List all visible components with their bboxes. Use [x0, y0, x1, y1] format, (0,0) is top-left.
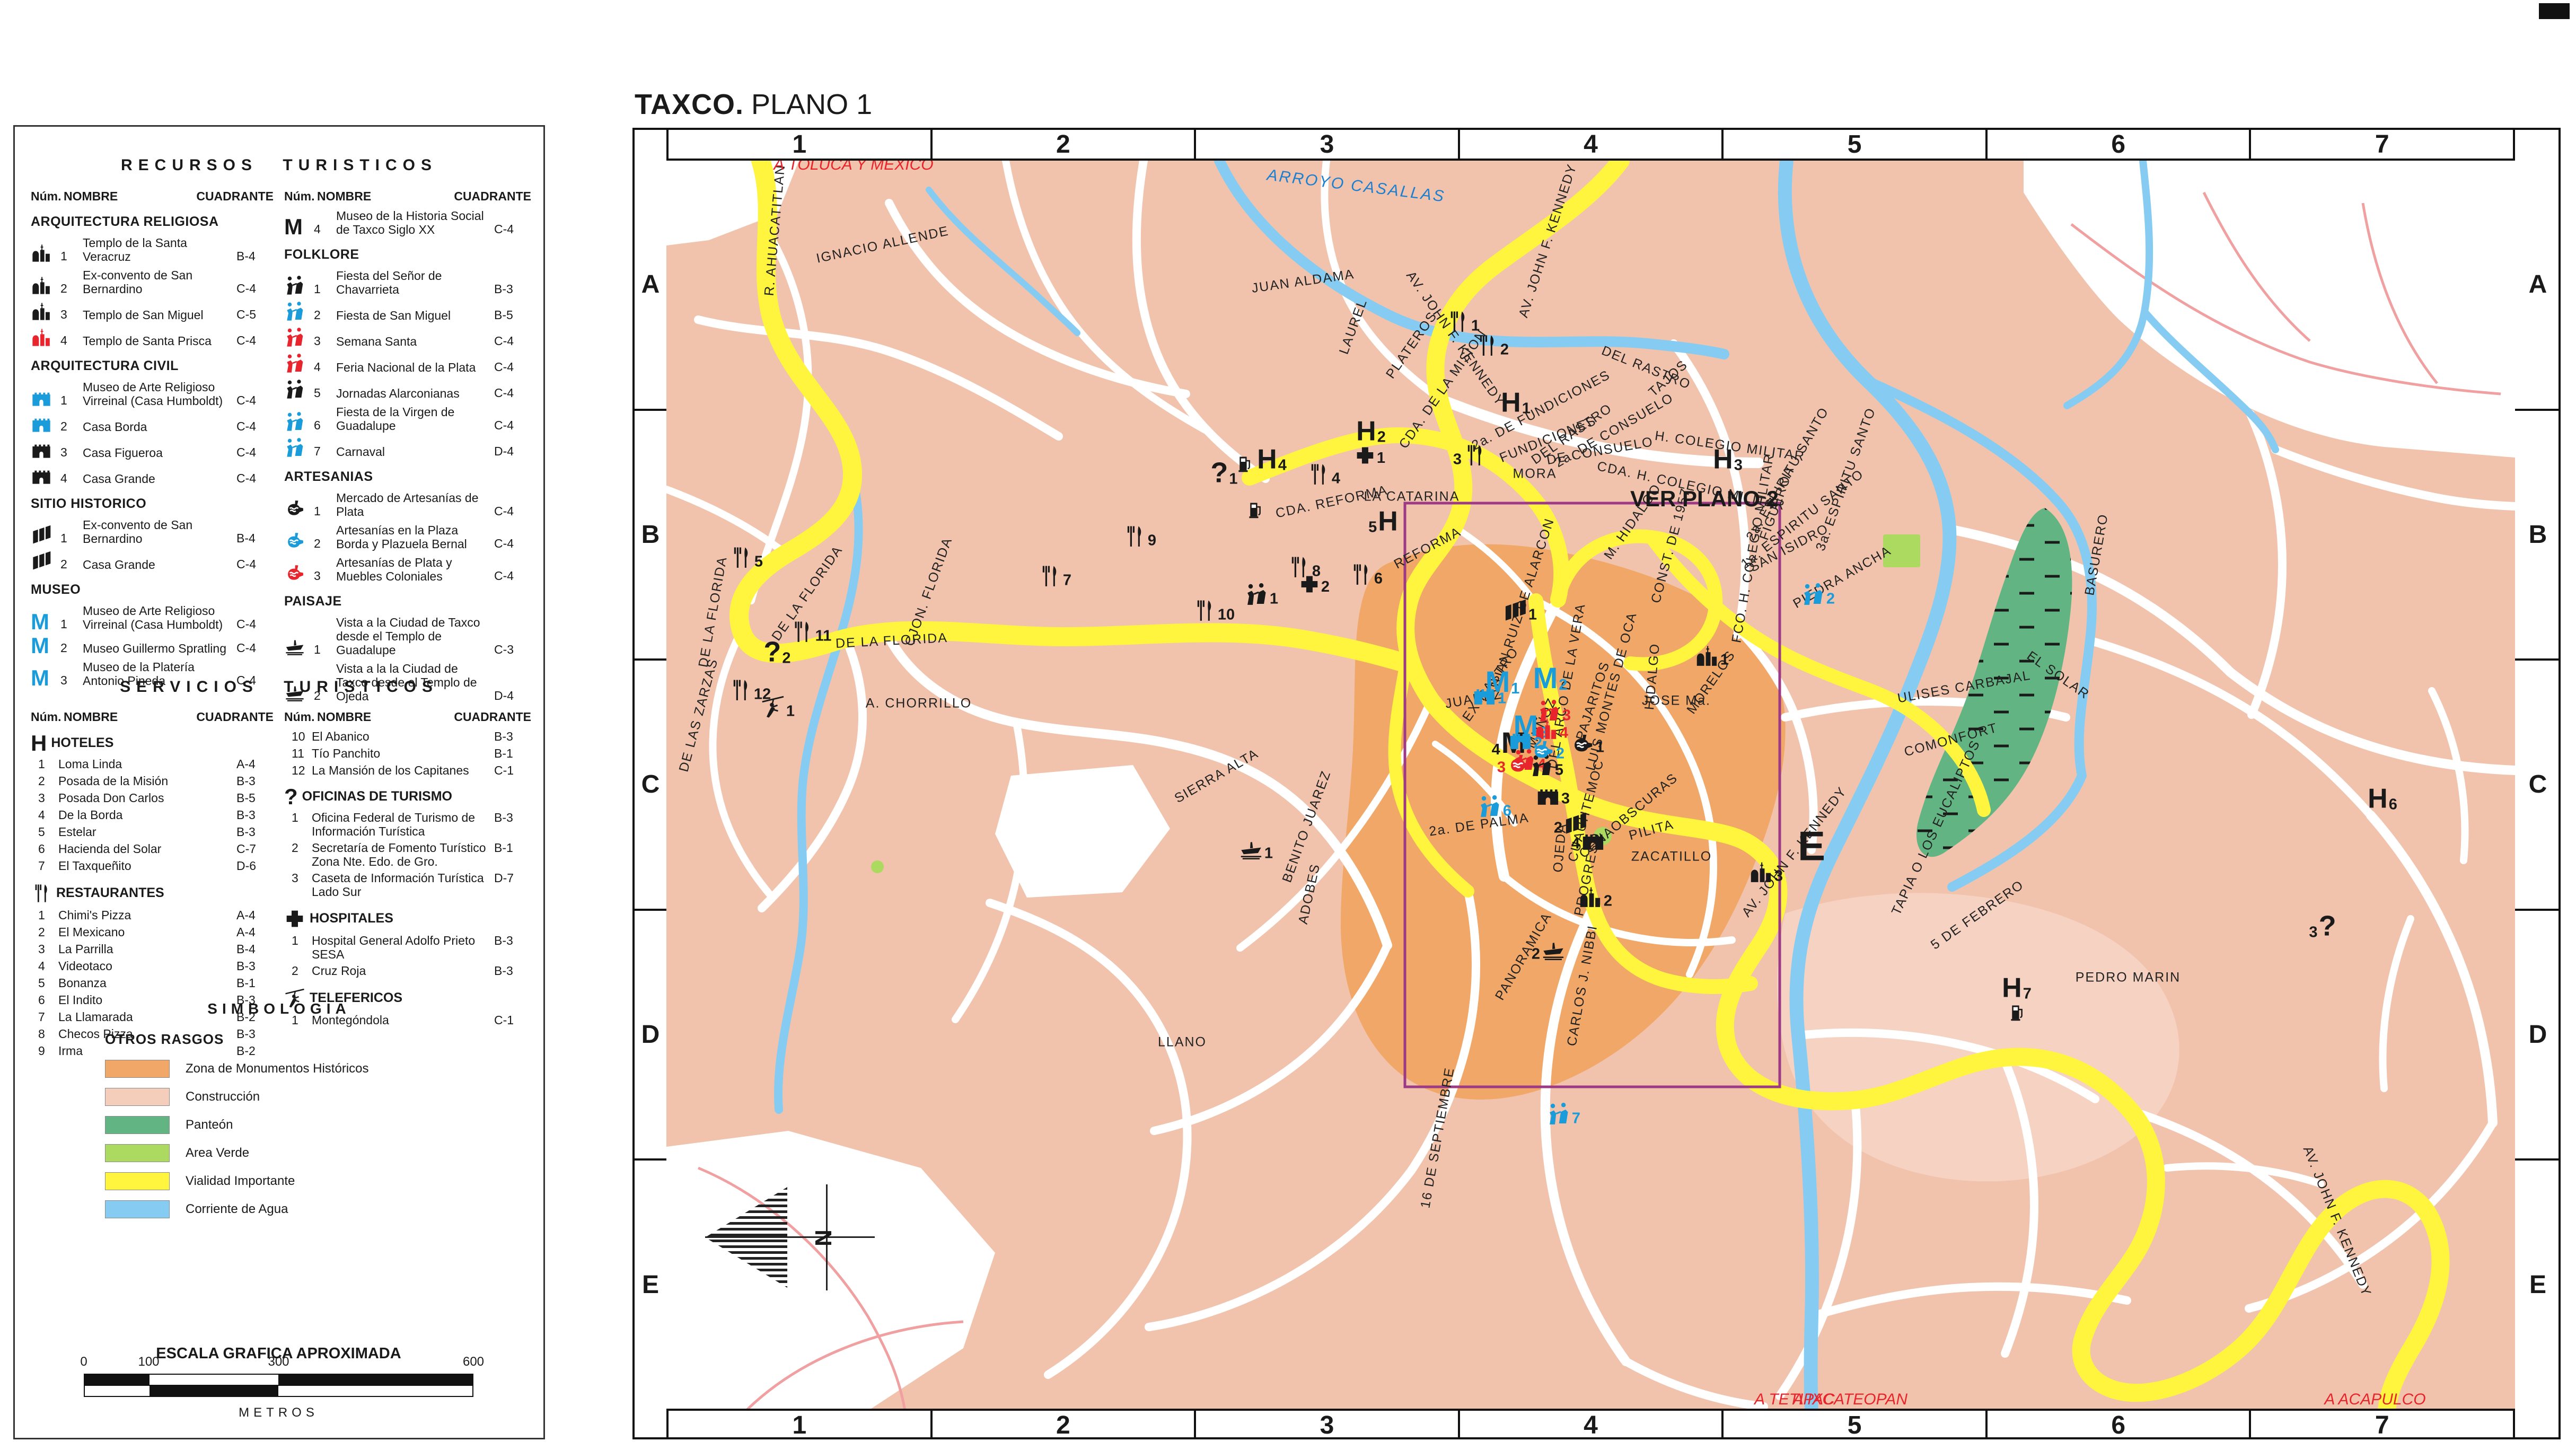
escala-segment: [150, 1375, 279, 1385]
marker-question1: ?1: [1210, 458, 1238, 487]
h-icon: H: [1378, 507, 1398, 535]
legend-item: 3Templo de San MiguelC-5: [31, 301, 274, 322]
legend-item: 7El TaxqueñitoD-6: [31, 859, 274, 873]
marker-fork4: 4: [1306, 462, 1341, 487]
legend-item-name: Templo de San Miguel: [83, 308, 236, 322]
legend-item-name: Museo Guillermo Spratling: [83, 641, 236, 655]
gas-icon: [2008, 1003, 2028, 1023]
gas-icon: [1246, 500, 1267, 520]
marker-gas: [1236, 454, 1256, 474]
grid-col-label: 1: [669, 130, 930, 159]
legend-item: 7CarnavalD-4: [284, 437, 531, 459]
legend-item: 1Templo de la Santa VeracruzB-4: [31, 236, 274, 263]
marker-number: 1: [1498, 691, 1506, 707]
legend-item-num: 4: [60, 471, 83, 486]
legend-item-name: Museo de Arte Religioso Virreinal (Casa …: [83, 604, 236, 631]
simbologia-label: Panteón: [186, 1118, 233, 1132]
flags-icon: [31, 524, 52, 546]
legend-item-quadrant: A-4: [236, 757, 274, 771]
legend-section-title-text: HOSPITALES: [310, 911, 393, 926]
marker-vista1: 1: [1239, 837, 1274, 862]
legend-item-name: Videotaco: [58, 959, 236, 973]
destination-label: A TOLUCA Y MEXICO: [773, 161, 933, 174]
legend-item-name: Artesanías de Plata y Muebles Coloniales: [336, 556, 494, 583]
legend-item: 6Hacienda del SolarC-7: [31, 842, 274, 856]
marker-fork11: 11: [790, 620, 833, 644]
legend-item-quadrant: C-4: [236, 419, 274, 434]
simbologia-swatch: [105, 1060, 170, 1078]
marker-dancers1: 1: [1244, 583, 1279, 607]
marker-fork9: 9: [1122, 524, 1157, 549]
fork-icon: [1192, 599, 1217, 623]
corner-mark: [2539, 3, 2570, 19]
fork-icon: [1038, 564, 1062, 588]
legend-item-name: Vista a la Ciudad de Taxco desde el Temp…: [336, 616, 494, 657]
marker-H2: H2: [1356, 417, 1387, 445]
marker-number: 7: [1063, 573, 1071, 588]
legend-item: 4Feria Nacional de la PlataC-4: [284, 353, 531, 374]
temple-icon: [31, 327, 52, 348]
map-area: R. AHUACATITLANIGNACIO ALLENDEJUAN ALDAM…: [666, 161, 2515, 1409]
legend-item-num: 1: [314, 282, 336, 296]
legend-item-quadrant: B-3: [236, 959, 274, 973]
legend-item-name: Artesanías en la Plaza Borda y Plazuela …: [336, 523, 494, 551]
grid-band-right: ABCDE: [2515, 161, 2561, 1409]
legend-item-num: 4: [31, 808, 58, 822]
fork-icon: [728, 678, 753, 702]
simbologia-label: Construcción: [186, 1089, 260, 1104]
legend-item-quadrant: D-7: [494, 871, 531, 885]
legend-item-name: Posada de la Misión: [58, 774, 236, 788]
legend-item-num: 7: [314, 444, 336, 459]
marker-dancers3: 3: [1537, 699, 1572, 724]
fork-icon: [1306, 462, 1331, 487]
legend-item-quadrant: C-7: [236, 842, 274, 856]
legend-item-num: 2: [60, 641, 83, 655]
grid-col-label: 4: [1458, 130, 1722, 159]
legend-item-icon-cell: M: [284, 217, 314, 236]
legend-item: 1Ex-convento de San BernardinoB-4: [31, 518, 274, 546]
marker-number: 6: [1503, 804, 1511, 819]
marker-number: 2: [1321, 579, 1330, 595]
jug-icon: [1570, 731, 1595, 755]
legend-item-icon-cell: [284, 437, 314, 459]
legend-item-quadrant: B-3: [494, 730, 531, 744]
grid-col-label: 7: [2249, 130, 2513, 159]
marker-vista2: 2: [1531, 938, 1566, 962]
legend-column-header: Núm.NOMBRECUADRANTE: [284, 710, 531, 724]
marker-number: 4: [1278, 458, 1287, 473]
legend-item: 6Fiesta de la Virgen de GuadalupeC-4: [284, 405, 531, 433]
legend-item-num: 3: [60, 307, 83, 322]
header-nombre: NOMBRE: [64, 710, 196, 724]
legend-item: 10El AbanicoB-3: [284, 730, 531, 744]
legend-item-icon-cell: M: [31, 636, 60, 655]
legend-item: M1Museo de Arte Religioso Virreinal (Cas…: [31, 604, 274, 631]
legend-item-quadrant: A-4: [236, 908, 274, 922]
legend-item-quadrant: C-4: [494, 360, 531, 374]
legend-item-quadrant: C-4: [236, 333, 274, 348]
legend-item-num: 3: [314, 334, 336, 348]
legend-item-quadrant: C-4: [236, 393, 274, 408]
legend-item-icon-cell: [284, 327, 314, 348]
legend-item: 2Artesanías en la Plaza Borda y Plazuela…: [284, 523, 531, 551]
escala-segment: [85, 1375, 150, 1385]
legend-item-name: Mercado de Artesanías de Plata: [336, 491, 494, 519]
legend-item-num: 2: [314, 308, 336, 322]
legend-item: 12La Mansión de los CapitanesC-1: [284, 763, 531, 778]
temple-icon: [1578, 885, 1603, 909]
legend-item-num: 3: [314, 569, 336, 583]
marker-number: 3: [1562, 708, 1571, 724]
servicios-right-column: Núm.NOMBRECUADRANTE10El AbanicoB-311Tío …: [284, 710, 531, 1030]
dancers-icon: [284, 327, 305, 348]
legend-item-name: Tío Panchito: [312, 746, 494, 760]
marker-number: 6: [2389, 797, 2397, 812]
legend-item-icon-cell: [284, 379, 314, 400]
legend-item: 1Mercado de Artesanías de PlataC-4: [284, 491, 531, 519]
legend-item: 3Casa FigueroaC-4: [31, 438, 274, 460]
legend-item-quadrant: B-5: [236, 791, 274, 805]
cross-icon: [1299, 574, 1320, 595]
legend-item: 1Vista a la Ciudad de Taxco desde el Tem…: [284, 616, 531, 657]
jug-icon: [1531, 737, 1555, 762]
escala-bar-row: [84, 1385, 473, 1397]
marker-casa1: 1: [1472, 682, 1507, 707]
legend-item-icon-cell: [284, 530, 314, 551]
grid-row-label: B: [635, 409, 666, 659]
legend-item-icon-cell: [31, 301, 60, 322]
simbologia-item: Corriente de Agua: [105, 1200, 369, 1218]
legend-item: 2Secretaría de Fomento Turístico Zona Nt…: [284, 841, 531, 868]
fork-icon: [1122, 524, 1147, 549]
otros-rasgos-label: OTROS RASGOS: [105, 1031, 224, 1048]
legend-item-icon-cell: [31, 412, 60, 434]
dancers-icon: [284, 437, 305, 459]
legend-item-quadrant: C-4: [494, 504, 531, 519]
dancers-icon: [1537, 699, 1561, 724]
legend-item-name: Feria Nacional de la Plata: [336, 361, 494, 374]
legend-section-title: FOLKLORE: [284, 247, 531, 262]
legend-section-title: ARQUITECTURA RELIGIOSA: [31, 214, 274, 230]
legend-item-name: Carnaval: [336, 445, 494, 459]
legend-item-num: 1: [60, 531, 83, 546]
m-icon: M: [31, 612, 49, 631]
legend-item: 2Ex-convento de San BernardinoC-4: [31, 268, 274, 296]
marker-number: 2: [1500, 342, 1509, 358]
legend-item-icon-cell: [31, 327, 60, 348]
legend-item-num: 4: [31, 959, 58, 973]
legend-item: 2Cruz RojaB-3: [284, 964, 531, 978]
m-icon: M: [284, 217, 303, 236]
legend-section-title: ?OFICINAS DE TURISMO: [284, 787, 531, 806]
legend-item-name: La Mansión de los Capitanes: [312, 763, 494, 777]
marker-jug1: 1: [1570, 731, 1605, 755]
legend-item: 1Hospital General Adolfo Prieto SESAB-3: [284, 934, 531, 961]
map-title: TAXCO.PLANO 1: [635, 88, 872, 121]
grid-col-label: 5: [1721, 130, 1985, 159]
legend-item-quadrant: C-4: [236, 471, 274, 486]
legend-item-name: Semana Santa: [336, 335, 494, 348]
legend-item: 1Loma LindaA-4: [31, 757, 274, 771]
legend-section-title: HOSPITALES: [284, 908, 531, 929]
legend-item-quadrant: C-4: [236, 445, 274, 460]
marker-number: 4: [1332, 471, 1340, 487]
marker-number: 5: [1368, 520, 1377, 535]
question-icon: ?: [763, 637, 781, 666]
legend-item-quadrant: B-1: [494, 841, 531, 855]
destination-label: A IXCATEOPAN: [1793, 1391, 1907, 1409]
legend-item-name: Caseta de Información Turística Lado Sur: [312, 871, 494, 899]
legend-item-name: Secretaría de Fomento Turístico Zona Nte…: [312, 841, 494, 868]
marker-number: 6: [1374, 572, 1383, 587]
servicios-title: SERVICIOS TURISTICOS: [15, 678, 543, 696]
grid-col-label: 4: [1458, 1411, 1722, 1439]
legend-item-quadrant: B-4: [236, 531, 274, 546]
legend-item-name: Estelar: [58, 825, 236, 839]
legend-item-quadrant: C-1: [494, 763, 531, 778]
legend-section-title: SITIO HISTORICO: [31, 496, 274, 512]
legend-item-name: Posada Don Carlos: [58, 791, 236, 805]
legend-column-header: Núm.NOMBRECUADRANTE: [284, 189, 531, 204]
dancers-icon: [1478, 795, 1502, 819]
legend-item-name: Fiesta de la Virgen de Guadalupe: [336, 405, 494, 433]
marker-number: 7: [1572, 1111, 1580, 1127]
legend-panel: RECURSOS TURISTICOS Núm.NOMBRECUADRANTEA…: [13, 125, 545, 1439]
ver-plano-2-label: VER PLANO 2: [1630, 486, 1779, 512]
legend-item-name: Bonanza: [58, 976, 236, 990]
legend-item-icon-cell: [31, 275, 60, 296]
legend-item-name: Ex-convento de San Bernardino: [83, 268, 236, 296]
casa-icon: [31, 438, 52, 460]
legend-item-quadrant: B-3: [236, 774, 274, 788]
jug-icon: [284, 562, 305, 583]
legend-item-icon-cell: M: [31, 612, 60, 631]
simbologia-items: Zona de Monumentos HistóricosConstrucció…: [105, 1060, 369, 1228]
legend-item: 11Tío PanchitoB-1: [284, 746, 531, 761]
legend-item: 1Oficina Federal de Turismo de Informaci…: [284, 811, 531, 838]
marker-number: 7: [2023, 986, 2032, 1001]
h-icon: H: [1713, 445, 1733, 473]
vista-icon: [1239, 837, 1263, 862]
marker-casa3: 3: [1536, 783, 1571, 807]
legend-item-num: 6: [31, 842, 58, 856]
grid-row-label: D: [2515, 909, 2561, 1159]
legend-item: 3La ParrillaB-4: [31, 942, 274, 956]
legend-item-name: Casa Figueroa: [83, 446, 236, 460]
legend-item: 2Posada de la MisiónB-3: [31, 774, 274, 788]
dancers-icon: [284, 353, 305, 374]
vista-icon: [1541, 938, 1566, 962]
grid-col-label: 3: [1194, 130, 1458, 159]
marker-cross2: 2: [1299, 574, 1331, 595]
marker-number: 10: [1218, 608, 1235, 623]
legend-item-num: 5: [31, 825, 58, 839]
street-label: MORA: [1513, 467, 1557, 482]
legend-item-name: El Abanico: [312, 730, 494, 743]
grid-col-label: 3: [1194, 1411, 1458, 1439]
legend-item-quadrant: C-4: [236, 617, 274, 631]
legend-item-num: 8: [31, 1027, 58, 1041]
simbologia-swatch: [105, 1116, 170, 1134]
h-icon: H: [2002, 974, 2022, 1001]
header-nombre: NOMBRE: [317, 710, 454, 724]
legend-section-title: ARTESANIAS: [284, 469, 531, 485]
legend-item-name: Hospital General Adolfo Prieto SESA: [312, 934, 494, 961]
simbologia-item: Panteón: [105, 1116, 369, 1134]
legend-item-num: 3: [31, 791, 58, 805]
marker-dancers6: 6: [1478, 795, 1513, 819]
legend-item-quadrant: C-4: [236, 641, 274, 655]
legend-item-quadrant: B-3: [494, 964, 531, 978]
grid-col-label: 2: [930, 1411, 1194, 1439]
legend-item: 2El MexicanoA-4: [31, 925, 274, 939]
legend-item-num: 3: [31, 942, 58, 956]
marker-temple2: 2: [1578, 885, 1613, 909]
grid-row-label: A: [2515, 161, 2561, 409]
marker-number: 1: [1528, 608, 1537, 623]
legend-item-quadrant: C-5: [236, 307, 274, 322]
legend-item: 1Fiesta del Señor de ChavarrietaB-3: [284, 269, 531, 296]
fork-icon: [31, 883, 52, 904]
legend-item-num: 2: [60, 282, 83, 296]
legend-item-num: 7: [31, 859, 58, 873]
legend-item-num: 2: [60, 419, 83, 434]
legend-item: 5EstelarB-3: [31, 825, 274, 839]
casa-icon: [1536, 783, 1560, 807]
marker-question2: ?2: [763, 637, 792, 666]
header-num: Núm.: [284, 710, 317, 724]
legend-item: 1Museo de Arte Religioso Virreinal (Casa…: [31, 380, 274, 408]
street-label: ZACATILLO: [1631, 849, 1712, 865]
legend-item-icon-cell: [31, 524, 60, 546]
legend-section-title-text: HOTELES: [51, 735, 113, 751]
legend-item-name: Oficina Federal de Turismo de Informació…: [312, 811, 494, 838]
legend-item-quadrant: B-1: [494, 746, 531, 761]
legend-item-num: 2: [284, 964, 312, 978]
marker-number: 1: [786, 704, 795, 719]
legend-item-name: Cruz Roja: [312, 964, 494, 978]
marker-number: 1: [1377, 451, 1385, 466]
grid-col-label: 1: [669, 1411, 930, 1439]
grid-row-label: E: [635, 1158, 666, 1409]
marker-fork3: 3: [1452, 443, 1487, 468]
legend-item-quadrant: B-3: [236, 825, 274, 839]
header-cuadrante: CUADRANTE: [454, 710, 531, 724]
marker-number: 2: [782, 651, 790, 666]
escala-bar: 0100300600: [84, 1374, 473, 1399]
dancers-icon: [284, 275, 305, 296]
legend-item-num: 5: [314, 386, 336, 400]
marker-fork1: 1: [1446, 310, 1481, 334]
casa-icon: [1472, 682, 1497, 707]
legend-item-name: Museo de la Historia Social de Taxco Sig…: [336, 209, 494, 236]
legend-item-name: De la Borda: [58, 808, 236, 822]
legend-item-name: Templo de Santa Prisca: [83, 334, 236, 348]
marker-dancers2: 2: [1801, 583, 1836, 607]
street-label: A. CHORRILLO: [866, 696, 972, 711]
dancers-icon: [1801, 583, 1825, 607]
marker-number: 3: [1561, 792, 1570, 807]
legend-item-name: El Mexicano: [58, 925, 236, 939]
marker-fork6: 6: [1349, 563, 1384, 587]
legend-item-icon-cell: [284, 562, 314, 583]
marker-number: 5: [1555, 763, 1563, 778]
marker-temple3: 3: [1749, 860, 1784, 884]
legend-item-num: 4: [314, 360, 336, 374]
legend-item-quadrant: C-3: [494, 643, 531, 657]
legend-item-num: 1: [284, 934, 312, 948]
escala-segment: [278, 1375, 472, 1385]
legend-item-quadrant: D-6: [236, 859, 274, 873]
marker-number: 3: [1497, 760, 1506, 776]
simbologia-swatch: [105, 1172, 170, 1190]
street-label: PEDRO MARIN: [2076, 970, 2181, 986]
legend-item-icon-cell: [284, 275, 314, 296]
legend-item-icon-cell: [284, 353, 314, 374]
legend-item: 1Chimi's PizzaA-4: [31, 908, 274, 922]
grid-col-label: 2: [930, 130, 1194, 159]
header-cuadrante: CUADRANTE: [196, 189, 274, 204]
h-icon: H: [1356, 417, 1376, 445]
legend-item: 5Jornadas AlarconianasC-4: [284, 379, 531, 400]
legend-item-quadrant: B-5: [494, 308, 531, 322]
simbologia-swatch: [105, 1144, 170, 1162]
recursos-left-column: Núm.NOMBRECUADRANTEARQUITECTURA RELIGIOS…: [31, 189, 274, 692]
legend-item-num: 2: [31, 925, 58, 939]
header-num: Núm.: [31, 189, 64, 204]
legend-item-num: 11: [284, 746, 312, 761]
grid-band-bottom: 1234567: [666, 1409, 2515, 1439]
recursos-right-column: Núm.NOMBRECUADRANTEM4Museo de la Histori…: [284, 189, 531, 708]
legend-section-title-text: OFICINAS DE TURISMO: [302, 789, 452, 804]
header-nombre: NOMBRE: [317, 189, 454, 204]
legend-item-icon-cell: [284, 497, 314, 519]
legend-item: 4VideotacoB-3: [31, 959, 274, 973]
fork-icon: [790, 620, 814, 644]
legend-item-name: El Taxqueñito: [58, 859, 236, 873]
temple-icon: [1749, 860, 1773, 884]
grid-col-label: 6: [1985, 130, 2249, 159]
legend-item-num: 2: [31, 774, 58, 788]
marker-flags2: 2: [1553, 812, 1588, 836]
marker-dancers7: 7: [1546, 1102, 1581, 1127]
question-icon: ?: [2319, 911, 2336, 940]
legend-item-name: Casa Grande: [83, 472, 236, 486]
gas-icon: [1236, 454, 1256, 474]
grid-row-label: C: [635, 658, 666, 909]
legend-section-title: MUSEO: [31, 582, 274, 597]
marker-temple1: 1: [1695, 644, 1730, 668]
legend-item: 3Artesanías de Plata y Muebles Coloniale…: [284, 556, 531, 583]
legend-item-name: Loma Linda: [58, 757, 236, 771]
marker-jug2: 2: [1531, 737, 1566, 762]
h-icon: H: [1257, 445, 1277, 473]
marker-number: 3: [1774, 869, 1783, 884]
legend-item-num: 1: [284, 811, 312, 825]
grid-band-top: 1234567: [666, 130, 2515, 161]
dancers-icon: [1546, 1102, 1571, 1127]
marker-number: 1: [1720, 653, 1729, 668]
legend-item: 4Casa GrandeC-4: [31, 464, 274, 486]
marker-cross1: 1: [1355, 445, 1386, 466]
legend-item-name: Casa Grande: [83, 558, 236, 572]
simbologia-item: Zona de Monumentos Históricos: [105, 1060, 369, 1078]
legend-item-quadrant: C-4: [494, 386, 531, 400]
simbologia-item: Construcción: [105, 1088, 369, 1106]
legend-item-quadrant: B-3: [494, 811, 531, 825]
legend-item-icon-cell: [31, 464, 60, 486]
